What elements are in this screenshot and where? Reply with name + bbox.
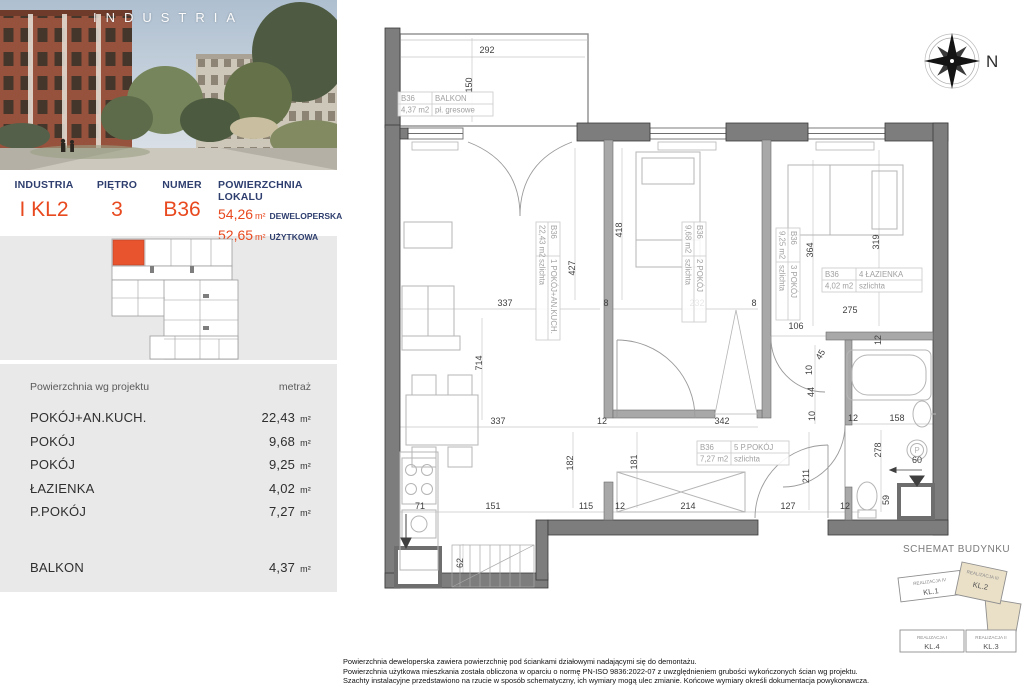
- dimension-label: 278: [873, 442, 883, 457]
- dimension-label: 418: [614, 222, 624, 237]
- room-label-finish: szlichta: [734, 455, 761, 464]
- room-label-unit: B36: [549, 225, 558, 239]
- room-label-area: 22,43 m2: [538, 225, 547, 258]
- room-label-area: 9,25 m2: [778, 231, 787, 259]
- dining-table: [406, 375, 478, 467]
- footer-disclaimer: Powierzchnia deweloperska zawiera powier…: [343, 657, 1021, 686]
- pillow: [642, 158, 694, 184]
- dimension-label: 62: [455, 558, 465, 568]
- dimension-label: 275: [842, 305, 857, 315]
- dimension-label: 292: [479, 45, 494, 55]
- bathtub: [847, 350, 931, 400]
- dimension-label: 337: [497, 298, 512, 308]
- room-label-box: B361 POKÓJ+AN.KUCH.22,43 m2szlichta: [536, 222, 560, 340]
- room-label-box: B364 ŁAZIENKA4,02 m2szlichta: [822, 268, 922, 292]
- room-label-box: B363 POKÓJ9,25 m2szlichta: [776, 228, 800, 320]
- room-label-box: B362 POKÓJ9,68 m2szlichta: [682, 222, 706, 322]
- dimension-label: 214: [680, 501, 695, 511]
- dimension-label: 8: [603, 298, 608, 308]
- dimension-label: 150: [464, 77, 474, 92]
- room-label-finish: szlichta: [684, 259, 693, 286]
- room-label-finish: pł. gresowe: [435, 106, 475, 115]
- disclaimer-line: Powierzchnia deweloperska zawiera powier…: [343, 657, 1021, 667]
- schemat-budynku: SCHEMAT BUDYNKU REALIZACJA IV KL.1 REALI…: [898, 544, 1021, 652]
- dimension-label: 10: [804, 365, 814, 375]
- schemat-block-kl3: REALIZACJA II KL.3: [966, 630, 1016, 652]
- dimension-label: 44: [806, 387, 816, 397]
- schemat-block-kl: KL.1: [923, 586, 939, 597]
- dimension-label: 60: [912, 455, 922, 465]
- dimension-label: 12: [873, 335, 883, 345]
- room-label-area: 9,68 m2: [684, 225, 693, 253]
- dimension-label: 106: [788, 321, 803, 331]
- bathroom-door-arc: [783, 425, 845, 487]
- dimension-label: 45: [814, 348, 828, 362]
- living-door-arc: [617, 340, 695, 418]
- dimension-label: 71: [415, 501, 425, 511]
- disclaimer-line: Szachty instalacyjne przedstawiono na rz…: [343, 676, 1021, 686]
- dimension-label: 427: [567, 260, 577, 275]
- pillow: [872, 171, 897, 229]
- room-label-name: 2 POKÓJ: [695, 259, 704, 292]
- room-label-finish: szlichta: [859, 282, 886, 291]
- room-label-area: 4,02 m2: [825, 282, 853, 291]
- schemat-block-realizacja: REALIZACJA II: [975, 635, 1006, 640]
- dimension-label: 342: [714, 416, 729, 426]
- room2-door-swing: [715, 310, 757, 414]
- room-label-name: 1 POKÓJ+AN.KUCH.: [549, 259, 558, 334]
- dimension-label: 12: [840, 501, 850, 511]
- installation-shafts: [396, 485, 933, 586]
- dimension-label: 12: [615, 501, 625, 511]
- room-label-name: 4 ŁAZIENKA: [859, 270, 904, 279]
- room-label-unit: B36: [700, 443, 714, 452]
- room-label-unit: B36: [825, 270, 839, 279]
- room-label-name: BALKON: [435, 94, 467, 103]
- dimension-label: 151: [485, 501, 500, 511]
- bed-room3: [788, 165, 903, 235]
- dimension-label: 182: [565, 455, 575, 470]
- balcony-door-arc: [520, 142, 572, 216]
- schemat-block-kl: KL.4: [924, 642, 939, 651]
- dimension-label: 59: [881, 495, 891, 505]
- floor-plan-svg: P 29215042733787143371241823283643192751…: [0, 0, 1024, 700]
- corridor-door-arc: [771, 336, 825, 392]
- schemat-block-realizacja: REALIZACJA I: [917, 635, 947, 640]
- kitchen-sink: [402, 510, 436, 538]
- compass-north-label: N: [986, 52, 998, 71]
- schemat-block-kl4: REALIZACJA I KL.4: [900, 630, 964, 652]
- dimension-label: 158: [889, 413, 904, 423]
- room-label-boxes: B36BALKON4,37 m2pł. gresoweB361 POKÓJ+AN…: [398, 92, 922, 465]
- dimension-label: 181: [629, 454, 639, 469]
- dimension-label: 12: [848, 413, 858, 423]
- dimension-label: 127: [780, 501, 795, 511]
- stove: [402, 458, 436, 504]
- room-label-box: B365 P.POKÓJ7,27 m2szlichta: [697, 441, 789, 465]
- radiators: [412, 142, 874, 150]
- dimension-label: 8: [751, 298, 756, 308]
- room-label-unit: B36: [695, 225, 704, 239]
- dimension-label: 319: [871, 234, 881, 249]
- schemat-kl2-wing: [985, 598, 1021, 632]
- room-label-unit: B36: [401, 94, 415, 103]
- room-label-finish: szlichta: [538, 259, 547, 286]
- schemat-block-kl1: REALIZACJA IV KL.1: [898, 570, 962, 601]
- room-label-name: 5 P.POKÓJ: [734, 443, 773, 452]
- dimension-label: 337: [490, 416, 505, 426]
- washbasin: [913, 401, 936, 427]
- room-label-unit: B36: [789, 231, 798, 245]
- dimension-label: 714: [474, 355, 484, 370]
- room-label-area: 4,37 m2: [401, 106, 429, 115]
- compass: N: [924, 33, 998, 89]
- dimension-label: 12: [597, 416, 607, 426]
- dimension-label: 115: [579, 501, 593, 511]
- dimension-label: 10: [807, 411, 817, 421]
- cabinet: [404, 222, 452, 248]
- balcony-door-arc: [468, 142, 520, 216]
- room-label-area: 7,27 m2: [700, 455, 728, 464]
- dimension-label: 364: [805, 242, 815, 257]
- room-label-finish: szlichta: [778, 265, 787, 292]
- toilet: [857, 482, 877, 518]
- washing-machine-symbol: P: [914, 446, 919, 455]
- schemat-title: SCHEMAT BUDYNKU: [903, 544, 1010, 555]
- room-label-name: 3 POKÓJ: [789, 265, 798, 298]
- disclaimer-line: Powierzchnia użytkowa mieszkania została…: [343, 667, 1021, 677]
- dimension-label: 211: [801, 469, 811, 483]
- schemat-block-kl: KL.3: [983, 642, 998, 651]
- schemat-block-kl2: REALIZACJA III KL.2: [955, 562, 1007, 604]
- sofa: [402, 286, 460, 350]
- room-label-box: B36BALKON4,37 m2pł. gresowe: [398, 92, 493, 116]
